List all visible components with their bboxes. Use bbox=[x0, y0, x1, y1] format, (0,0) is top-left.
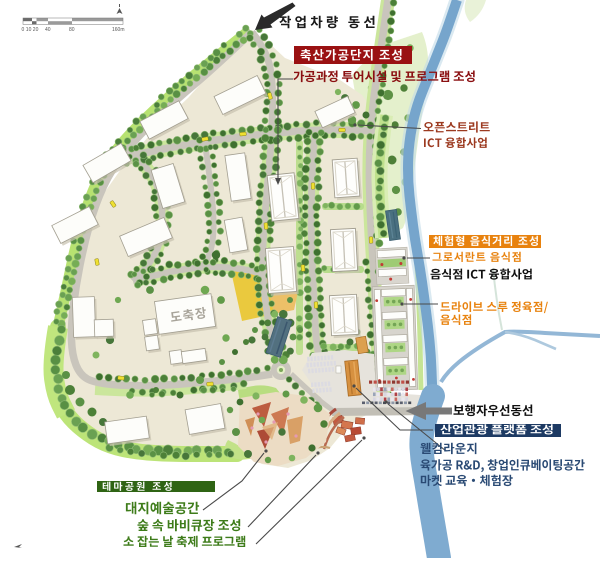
svg-text:160m: 160m bbox=[112, 27, 125, 33]
svg-text:80: 80 bbox=[69, 27, 75, 33]
svg-text:20: 20 bbox=[33, 27, 39, 33]
svg-text:0: 0 bbox=[22, 27, 25, 33]
svg-text:10: 10 bbox=[26, 27, 32, 33]
svg-text:40: 40 bbox=[45, 27, 51, 33]
